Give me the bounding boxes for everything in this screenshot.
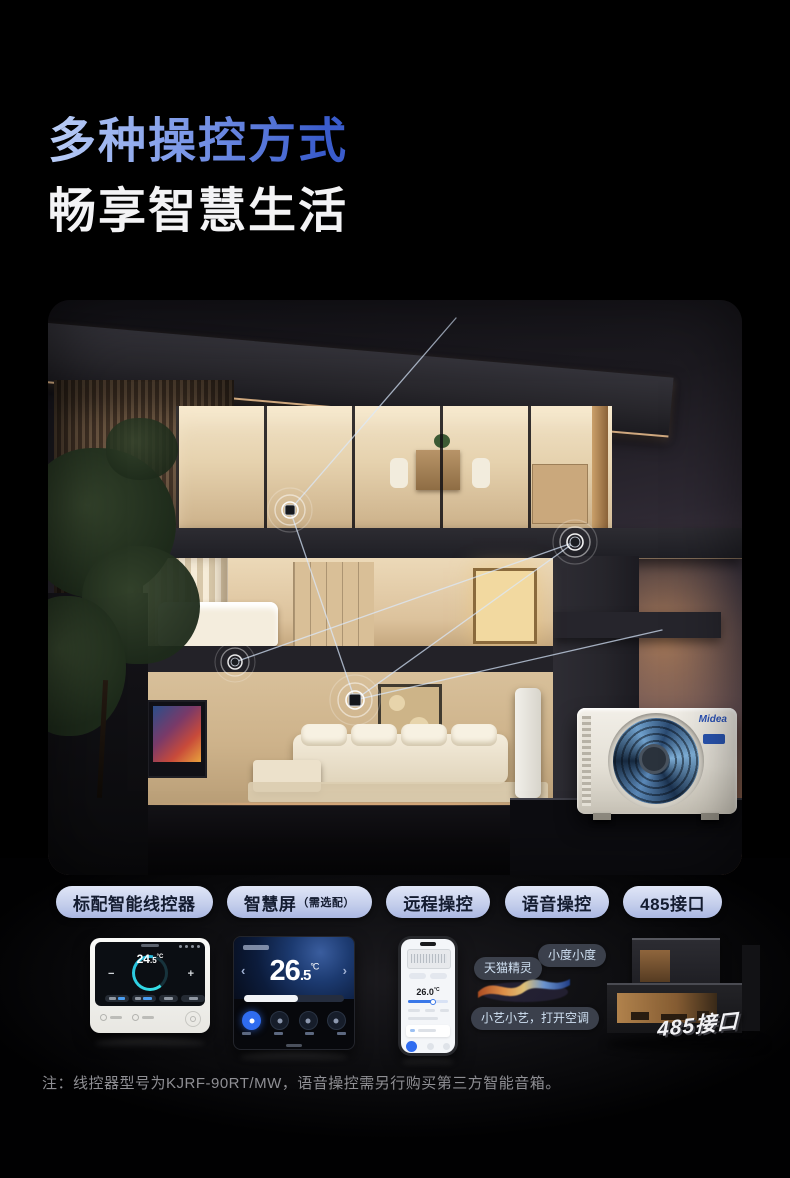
quick-buttons	[409, 973, 447, 979]
living-floor-slab	[143, 646, 553, 673]
control-row	[425, 1009, 435, 1012]
floor-edge-light	[143, 803, 553, 805]
headline-line1: 多种操控方式	[48, 116, 348, 169]
right-slab-extension	[553, 612, 721, 638]
badge-485-port: 485接口	[623, 886, 722, 918]
lit-window	[640, 950, 670, 982]
power-button-icon	[242, 1011, 261, 1030]
glass-mullions	[176, 406, 612, 530]
vanity-mirror	[473, 568, 537, 644]
swing-pill	[159, 995, 178, 1002]
app-temperature: 26.0°C	[401, 987, 455, 997]
promo-page: 多种操控方式 畅享智慧生活	[0, 0, 790, 1178]
controller-reflection	[95, 1038, 205, 1048]
controller-function-pills	[105, 995, 205, 1002]
badge-wired-controller: 标配智能线控器	[56, 886, 213, 918]
touch-key	[100, 1014, 122, 1021]
model-house-side	[742, 945, 760, 1031]
bedroom-floor	[143, 558, 553, 646]
control-row	[408, 1009, 420, 1012]
smart-screen-buttons	[242, 1011, 346, 1030]
tv-screen	[153, 706, 201, 762]
outdoor-unit-fan	[608, 713, 704, 809]
midea-brand-mark	[286, 1044, 302, 1047]
badge-label: 远程操控	[403, 890, 473, 915]
fanspeed-pill	[132, 995, 156, 1002]
mode-button-icon	[270, 1011, 289, 1030]
sofa	[293, 734, 508, 784]
power-button-icon	[185, 1011, 201, 1027]
footnote: 注：线控器型号为KJRF-90RT/MW，语音操控需另行购买第三方智能音箱。	[42, 1072, 561, 1093]
control-row	[440, 1009, 449, 1012]
feature-badge-row: 标配智能线控器 智慧屏 （需选配） 远程操控 语音操控 485接口	[56, 886, 722, 918]
device-card	[406, 1025, 450, 1037]
app-bottom-nav	[406, 1041, 450, 1052]
badge-label: 485接口	[640, 890, 705, 915]
app-screen: 26.0°C	[401, 939, 455, 1053]
menu-pill	[181, 995, 205, 1002]
indoor-floor-ac-unit	[515, 688, 541, 798]
temp-main: 24	[137, 952, 150, 966]
temp-unit: °C	[157, 954, 164, 960]
badge-voice-control: 语音操控	[505, 886, 609, 918]
badge-label-small: （需选配）	[297, 894, 355, 910]
living-room	[143, 672, 553, 805]
fan-button-icon	[299, 1011, 318, 1030]
badge-remote-control: 远程操控	[386, 886, 490, 918]
tree-foliage	[106, 418, 178, 480]
temp-frac: .5	[150, 956, 157, 965]
badge-label: 智慧屏	[244, 890, 297, 915]
temp-unit: °C	[434, 987, 440, 993]
button-captions	[242, 1032, 346, 1035]
controller-screen: 24.5°C − +	[95, 942, 205, 1006]
midea-logo: Midea	[699, 714, 727, 725]
unit-foot-left	[593, 813, 611, 820]
controller-brand-mark	[141, 944, 159, 947]
controller-temperature: 24.5°C	[95, 952, 205, 966]
badge-label: 语音操控	[522, 890, 592, 915]
touch-key	[132, 1014, 154, 1021]
plus-icon: +	[188, 968, 194, 980]
rug	[248, 782, 548, 802]
badge-smart-screen: 智慧屏 （需选配）	[227, 886, 372, 918]
wood-pillar	[592, 406, 608, 530]
voice-bubble-xiaodu: 小度小度	[538, 944, 606, 967]
chevron-left-icon: ‹	[241, 963, 245, 978]
unit-foot-right	[701, 813, 719, 820]
tv	[147, 700, 207, 778]
temp-unit: °C	[310, 961, 318, 971]
voice-wave-graphic	[476, 972, 572, 1006]
home-nav-icon	[406, 1041, 417, 1052]
temp-frac: .5	[300, 967, 311, 984]
more-button-icon	[327, 1011, 346, 1030]
fan-hub	[639, 744, 669, 774]
controller-touch-keys	[100, 1014, 154, 1021]
status-icons	[179, 945, 200, 948]
mid-floor-slab	[108, 528, 742, 559]
slider-fill	[408, 1000, 434, 1003]
wardrobe	[293, 562, 374, 646]
badge-label: 标配智能线控器	[73, 890, 196, 915]
mode-pill	[105, 995, 129, 1002]
hero-house-photo: Midea	[48, 300, 742, 875]
minus-icon: −	[108, 968, 114, 980]
smartphone: 26.0°C	[398, 936, 458, 1056]
outdoor-ac-unit: Midea	[577, 708, 737, 814]
temp-main: 26	[270, 955, 300, 987]
app-temperature-slider	[408, 1000, 448, 1003]
temperature-slider	[244, 995, 344, 1002]
slider-fill	[244, 995, 298, 1002]
chevron-right-icon: ›	[343, 963, 347, 978]
control-row	[408, 1017, 438, 1020]
headline-line2: 畅享智慧生活	[48, 186, 348, 239]
temp-value: 26.0	[416, 987, 434, 997]
energy-badge	[703, 734, 725, 744]
voice-bubble-xiaoyi-command: 小艺小艺，打开空调	[471, 1007, 599, 1030]
model-house-485: 485接口	[605, 925, 765, 1060]
outdoor-unit-side-vents	[582, 716, 591, 806]
wired-controller-device: 24.5°C − +	[90, 938, 210, 1033]
upper-glass-floor	[176, 406, 612, 530]
phone-notch	[420, 942, 436, 946]
smart-screen-temperature: 26.5°C	[234, 955, 354, 988]
smart-screen-reflection	[240, 1052, 348, 1062]
ac-device-image	[407, 949, 451, 969]
zone-name-text	[243, 945, 269, 950]
smart-screen-device: 26.5°C ‹ ›	[233, 936, 355, 1050]
phone-reflection	[402, 1058, 454, 1066]
